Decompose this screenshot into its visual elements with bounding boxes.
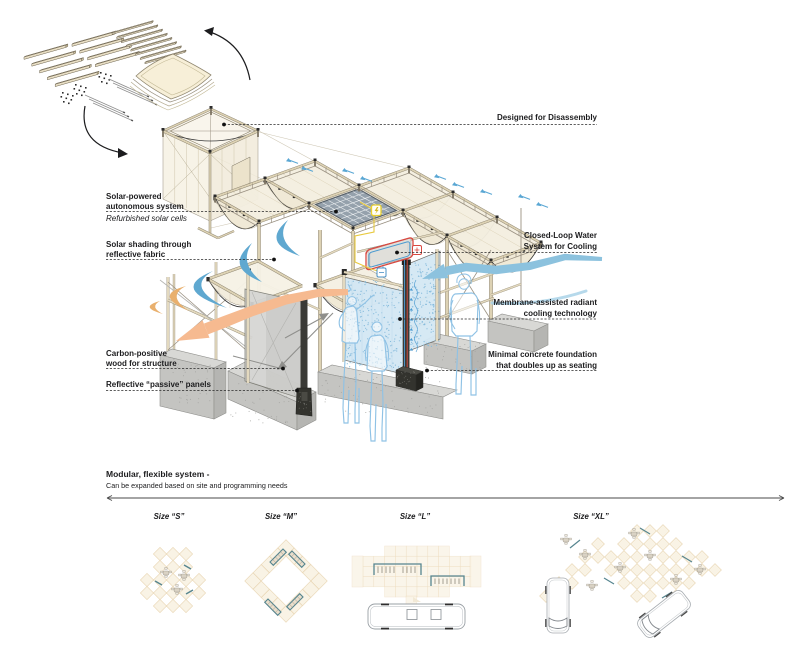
svg-text:Membrane-assisted radiant: Membrane-assisted radiant (493, 298, 597, 307)
svg-text:Solar-powered: Solar-powered (106, 192, 162, 201)
svg-text:Refurbished solar cells: Refurbished solar cells (106, 214, 187, 223)
svg-text:wood for structure: wood for structure (105, 359, 177, 368)
svg-text:Size “M”: Size “M” (265, 512, 297, 521)
svg-text:Closed-Loop Water: Closed-Loop Water (524, 231, 597, 240)
svg-text:Can be expanded based on site: Can be expanded based on site and progra… (106, 481, 288, 490)
svg-text:that doubles up as seating: that doubles up as seating (496, 361, 597, 370)
svg-text:Size “L”: Size “L” (400, 512, 430, 521)
svg-text:Minimal concrete foundation: Minimal concrete foundation (488, 350, 597, 359)
svg-text:Size “XL”: Size “XL” (573, 512, 609, 521)
svg-text:Solar shading through: Solar shading through (106, 240, 191, 249)
svg-text:cooling technology: cooling technology (524, 309, 598, 318)
svg-text:System for Cooling: System for Cooling (524, 242, 597, 251)
svg-text:autonomous system: autonomous system (106, 202, 184, 211)
svg-text:Reflective “passive” panels: Reflective “passive” panels (106, 380, 211, 389)
svg-text:Designed for Disassembly: Designed for Disassembly (497, 113, 598, 122)
svg-text:Carbon-positive: Carbon-positive (106, 349, 167, 358)
svg-text:reflective fabric: reflective fabric (106, 250, 166, 259)
svg-text:Size “S”: Size “S” (154, 512, 185, 521)
svg-text:Modular, flexible system -: Modular, flexible system - (106, 469, 210, 479)
